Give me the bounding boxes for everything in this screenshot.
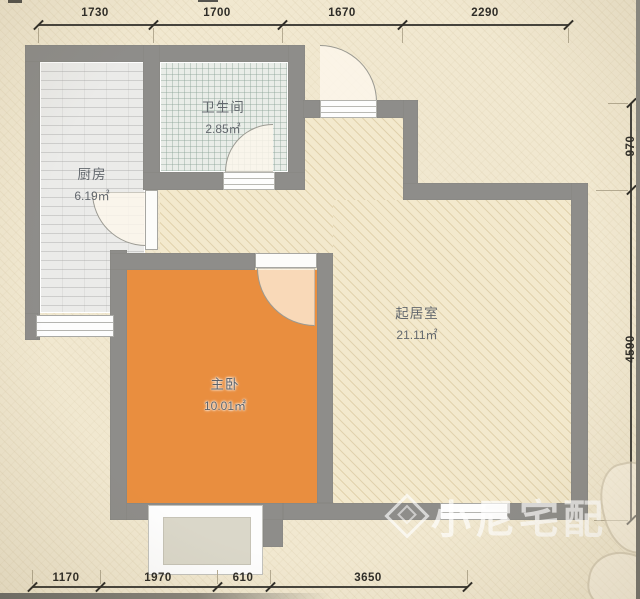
dim-top-4: 2290: [453, 7, 517, 19]
wall-bedroom-right: [317, 253, 333, 503]
bedroom-name: 主卧: [182, 373, 268, 393]
bay-window-frame: [148, 505, 263, 575]
room-label-living: 起居室 21.11㎡: [374, 302, 460, 343]
dim-bottom-1: 1170: [34, 572, 98, 584]
wall-top: [25, 45, 305, 62]
kitchen-window: [36, 315, 114, 337]
wall-left: [25, 45, 40, 340]
bathroom-area: 2.85㎡: [180, 120, 266, 137]
photo-edge-right: [636, 0, 640, 599]
dim-top-1: 1730: [63, 7, 127, 19]
bathroom-door: [223, 172, 275, 190]
photo-edge-mark-2: [198, 0, 218, 2]
photo-edge-bottom: [0, 593, 330, 599]
dim-top-2: 1700: [185, 7, 249, 19]
wall-kitchen-bathroom: [143, 45, 160, 190]
dim-bottom-3: 610: [211, 572, 275, 584]
dim-bottom-2: 1970: [126, 572, 190, 584]
dim-top-3: 1670: [310, 7, 374, 19]
ghost-sketch-bottom: [584, 548, 640, 599]
floor-plan: 厨房 6.19㎡ 卫生间 2.85㎡ 起居室 21.11㎡ 主卧 10.01㎡ …: [0, 0, 640, 599]
bedroom-area: 10.01㎡: [182, 397, 268, 414]
living-area: 21.11㎡: [374, 326, 460, 343]
wall-bathroom-bottom-east: [275, 172, 305, 190]
wall-bathroom-bottom-west: [143, 172, 223, 190]
living-room-floor-foyer: [305, 118, 403, 200]
kitchen-door-leaf: [145, 190, 158, 250]
room-label-kitchen: 厨房 6.19㎡: [52, 163, 132, 204]
dimension-line-top: [38, 24, 568, 26]
kitchen-area: 6.19㎡: [52, 187, 132, 204]
watermark-text: 小尼宅配: [431, 487, 607, 545]
wall-step: [403, 100, 418, 190]
entrance-door-arc: [320, 45, 377, 102]
room-label-bedroom: 主卧 10.01㎡: [182, 373, 268, 414]
bathroom-name: 卫生间: [180, 96, 266, 116]
watermark-logo-icon: [384, 493, 429, 538]
bay-window-sill: [163, 517, 251, 565]
dim-bottom-4: 3650: [336, 572, 400, 584]
room-label-bathroom: 卫生间 2.85㎡: [180, 96, 266, 137]
watermark: 小尼宅配: [391, 487, 607, 545]
living-room-floor-main: [333, 200, 571, 503]
entrance-door: [320, 100, 377, 118]
wall-top-right: [403, 183, 588, 200]
bedroom-door-leaf: [255, 253, 317, 268]
living-name: 起居室: [374, 302, 460, 322]
wall-right: [571, 183, 588, 520]
wall-bedroom-top: [110, 253, 255, 270]
wall-bedroom-left: [110, 250, 127, 520]
photo-edge-mark-1: [8, 0, 22, 3]
wall-entry-west: [303, 100, 320, 118]
kitchen-name: 厨房: [52, 163, 132, 183]
